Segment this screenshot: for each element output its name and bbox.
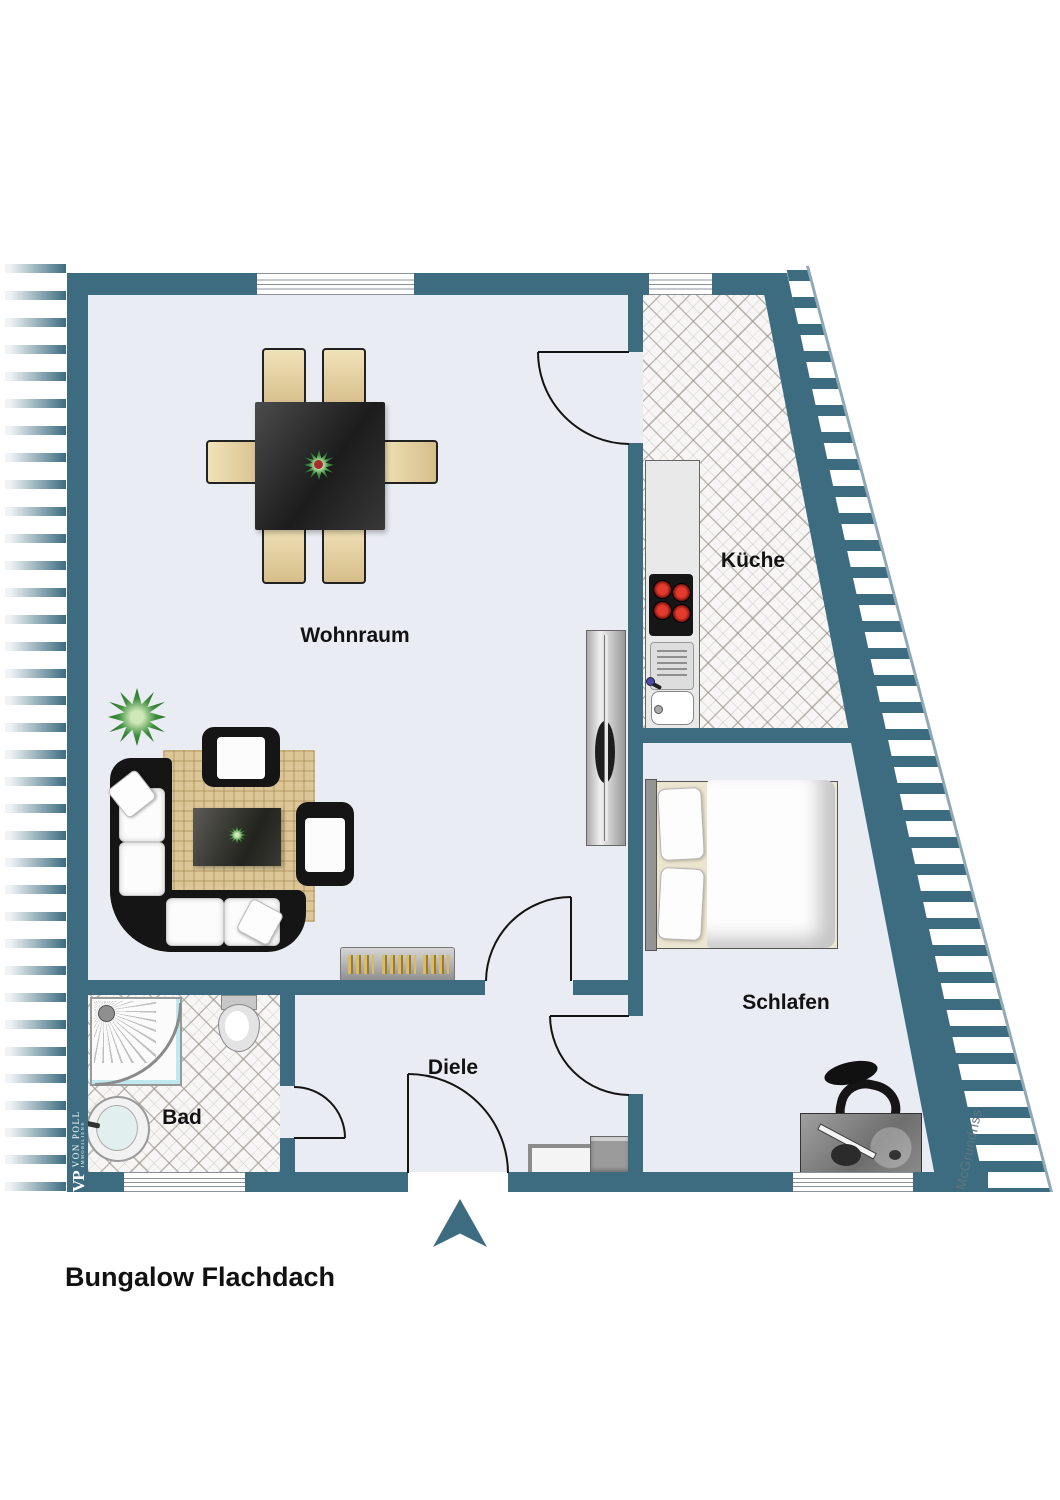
room-label-bad: Bad (162, 1106, 202, 1130)
wall-kitchen-bedroom (628, 728, 865, 743)
wall-left (67, 273, 88, 1192)
armchair-seat (217, 737, 265, 779)
sofa-cushion (166, 898, 224, 946)
mouse-icon (889, 1150, 901, 1160)
burner-icon (672, 604, 691, 623)
cabinet (586, 630, 626, 846)
wall-bath-hall-upper (280, 995, 295, 1086)
sink-drain (654, 705, 663, 714)
room-label-schlafen: Schlafen (742, 991, 830, 1015)
wall-hall-top-right (573, 980, 643, 995)
floor-plan: Wohnraum Küche Schlafen Bad Diele VP VON… (0, 0, 1060, 1500)
desk (800, 1113, 922, 1173)
wall-kitchen-living-upper (628, 295, 643, 352)
armchair-seat (305, 818, 345, 872)
burner-icon (653, 601, 672, 620)
sofa-cushion (119, 842, 165, 896)
window (124, 1172, 245, 1192)
flower-core (314, 460, 323, 469)
logo-initials: VP (69, 1171, 89, 1192)
wall-hall-top-left (67, 980, 485, 995)
books (348, 955, 374, 974)
armchair (296, 802, 354, 886)
hall-shoe-cabinet (590, 1136, 630, 1174)
shower (90, 997, 182, 1086)
wall-bedroom-hall-lower (628, 1094, 643, 1172)
books (382, 955, 416, 974)
bathroom-sink (86, 1096, 150, 1162)
vent-lines (657, 650, 687, 680)
desk-item (831, 1144, 861, 1166)
books (423, 955, 449, 974)
wall-bath-hall-lower (280, 1138, 295, 1172)
room-label-wohnraum: Wohnraum (300, 624, 409, 648)
dining-chair (262, 348, 306, 408)
burner-icon (672, 583, 691, 602)
double-bed (645, 778, 838, 950)
room-label-diele: Diele (428, 1056, 478, 1080)
stove-icon (649, 574, 693, 636)
bookshelf (340, 947, 455, 982)
entrance-arrow-icon (433, 1199, 487, 1247)
faucet-knob (646, 677, 655, 686)
entrance-opening (408, 1172, 508, 1192)
dining-chair (378, 440, 438, 484)
window (793, 1172, 913, 1192)
room-label-kueche: Küche (721, 549, 785, 573)
window (257, 273, 414, 295)
dining-chair (322, 524, 366, 584)
dining-chair (322, 348, 366, 408)
dining-chair (262, 524, 306, 584)
cabinet-door-line (604, 635, 608, 841)
armchair (202, 727, 280, 787)
window (649, 273, 712, 295)
bathroom-sink-inner (96, 1105, 138, 1151)
shower-glass (95, 1003, 182, 1086)
logo-subtitle: IMMOBILIEN® (81, 1110, 86, 1167)
bed-pillow (657, 867, 705, 941)
bed-pillow (657, 787, 705, 861)
burner-icon (653, 580, 672, 599)
bed-headboard (645, 779, 657, 951)
kitchen-counter (645, 460, 700, 730)
plan-title: Bungalow Flachdach (65, 1262, 335, 1293)
von-poll-logo: VP VON POLL IMMOBILIEN® (69, 1072, 89, 1192)
toilet-bowl-inner (225, 1011, 249, 1041)
roof-overhang-hatch-left (5, 264, 66, 1192)
bed-duvet (707, 780, 835, 948)
